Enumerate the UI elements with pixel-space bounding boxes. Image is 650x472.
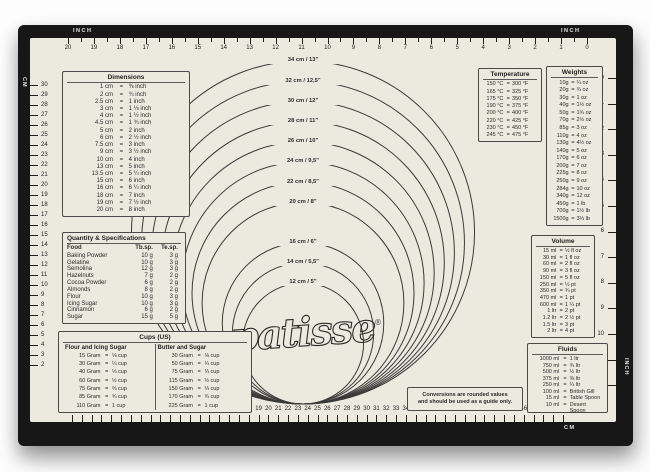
table-cell: =	[115, 207, 128, 214]
ruler-tick	[263, 38, 264, 42]
table-row: 40 Gram=⅓ cup	[65, 369, 153, 376]
table-cell: 190 °C	[483, 103, 505, 110]
table-row: 20g=¾ oz	[551, 87, 598, 94]
table-cell: 3 g	[156, 253, 181, 260]
table-cell: 30 Gram	[158, 353, 195, 360]
ruler-tick	[548, 38, 549, 42]
table-cell: 30 ml	[536, 255, 558, 262]
table-cell: 10 ml	[532, 402, 561, 415]
table-row: 9 cm=3 ½ inch	[67, 149, 185, 156]
ruler-tick	[431, 38, 432, 44]
table-cell: =	[102, 378, 110, 385]
ruler-tick	[328, 38, 329, 44]
ruler-tick	[30, 125, 38, 126]
ruler-number: 0	[579, 45, 595, 52]
ruler-number: 22	[41, 162, 48, 169]
table-cell: 1 ¼ pt	[564, 302, 590, 309]
table-cell: 7 g	[126, 273, 156, 280]
table-cell: 5 fl oz	[564, 275, 590, 282]
ruler-tick	[553, 415, 554, 422]
table-cell: 325 °F	[511, 89, 537, 96]
table-cell: 350 °F	[511, 96, 537, 103]
table-cell: ½ cup	[203, 378, 245, 385]
ruler-tick	[94, 38, 95, 44]
table-row: 175 °C=350 °F	[483, 96, 537, 103]
inch-unit-label: INCH	[623, 358, 629, 375]
table-cell: ¾ cup	[111, 394, 153, 401]
table-row: 350 ml=¾ pt	[536, 288, 590, 295]
table-cell: 450 °F	[511, 125, 537, 132]
table-row: 450g=1 lb	[551, 201, 598, 208]
table-cell: 300 °F	[511, 81, 537, 88]
ruler-tick	[376, 415, 377, 422]
ruler-tick	[30, 85, 38, 86]
ruler-tick	[146, 38, 147, 44]
ruler-number: 19	[86, 45, 102, 52]
table-cell: ½ fl oz	[564, 248, 590, 255]
table-cell: =	[115, 113, 128, 120]
ruler-number: 19	[41, 192, 48, 199]
ruler-number: 26	[41, 122, 48, 129]
table-cell: Desert Spoon	[569, 402, 603, 415]
ruler-tick	[608, 334, 616, 335]
table-cell: 1 cup	[203, 403, 245, 410]
table-row: 18 cm=7 inch	[67, 193, 185, 200]
table-row: 200g=7 oz	[551, 163, 598, 170]
ruler-number: 12	[41, 262, 48, 269]
ruler-tick	[81, 38, 82, 42]
table-row: 220 °C=425 °F	[483, 118, 537, 125]
ruler-tick	[131, 415, 132, 422]
ruler-tick	[121, 415, 122, 422]
ruler-tick	[608, 257, 616, 258]
table-cell: 7 oz	[575, 163, 598, 170]
ruler-tick	[608, 129, 616, 130]
ruler-tick	[249, 415, 250, 422]
ruler-tick	[250, 38, 251, 44]
table-cell: 1 lb	[575, 201, 598, 208]
table-cell: =	[115, 120, 128, 127]
ruler-tick	[504, 415, 505, 422]
table-cell: 170g	[551, 155, 571, 162]
ruler-tick	[276, 38, 277, 44]
ruler-tick	[30, 365, 38, 366]
table-cell: Hazelnuts	[67, 273, 126, 280]
table-cell: ¼ oz	[575, 80, 598, 87]
ruler-number: 2	[527, 45, 543, 52]
ruler-tick	[426, 415, 427, 422]
table-cell: ¾ inch	[128, 92, 185, 99]
table-cell: 40g	[551, 102, 571, 109]
ruler-tick	[185, 38, 186, 42]
temperature-table: Temperature 150 °C=300 °F165 °C=325 °F17…	[478, 68, 542, 142]
table-row: 4 cm=1 ½ inch	[67, 113, 185, 120]
table-cell: ⅛ cup	[203, 353, 245, 360]
ruler-tick	[278, 415, 279, 422]
ruler-number: 20	[41, 182, 48, 189]
fluids-table: Fluids 1000 ml=1 ltr750 ml=¾ ltr500 ml=½…	[527, 343, 608, 413]
table-cell: ¼ cup	[203, 361, 245, 368]
table-row: 340g=12 oz	[551, 193, 598, 200]
table-row: 3 cm=1 ⅛ inch	[67, 106, 185, 113]
ruler-tick	[30, 345, 38, 346]
ruler-number: 28	[41, 102, 48, 109]
table-cell: 10 g	[126, 294, 156, 301]
table-cell: Baking Powder	[67, 253, 126, 260]
table-row: 50g=1¾ oz	[551, 110, 598, 117]
table-row: 170g=6 oz	[551, 155, 598, 162]
table-cell: =	[115, 171, 128, 178]
table-cell: 3 ½ inch	[128, 149, 185, 156]
table-cell: ¾ oz	[575, 87, 598, 94]
table-cell: 6 cm	[67, 135, 115, 142]
ruler-number: 13	[41, 252, 48, 259]
table-cell: Cinnamon	[67, 307, 126, 314]
ruler-tick	[455, 415, 456, 422]
table-cell: Flour	[67, 294, 126, 301]
table-row: 250 ml=½ pt	[536, 282, 590, 289]
ruler-tick	[30, 275, 38, 276]
table-cell: 3 inch	[128, 142, 185, 149]
cm-unit-label: CM	[564, 425, 576, 431]
ruler-tick	[484, 415, 485, 422]
ruler-tick	[318, 415, 319, 422]
table-cell: =	[115, 99, 128, 106]
table-cell: 2 g	[156, 280, 181, 287]
ruler-number: 10	[41, 282, 48, 289]
table-cell: =	[102, 361, 110, 368]
table-cell: 30 Gram	[65, 361, 102, 368]
table-cell: 1 ½ inch	[128, 113, 185, 120]
table-cell: 245 °C	[483, 132, 505, 139]
group-header: Flour and Icing Sugar	[65, 344, 153, 352]
ruler-tick	[308, 415, 309, 422]
table-row: 2.5 cm=1 inch	[67, 99, 185, 106]
ruler-tick	[120, 38, 121, 44]
ruler-tick	[327, 415, 328, 422]
table-cell: 2 ½ pt	[564, 315, 590, 322]
table-cell: ⅓ cup	[203, 369, 245, 376]
ruler-tick	[30, 95, 38, 96]
ruler-tick	[224, 38, 225, 44]
table-cell: 6 ¼ inch	[128, 185, 185, 192]
table-cell: 2 inch	[128, 128, 185, 135]
table-cell: 12 oz	[575, 193, 598, 200]
table-row: 85 Gram=¾ cup	[65, 394, 153, 401]
table-cell: 115 Gram	[158, 378, 195, 385]
table-row: 284g=10 oz	[551, 186, 598, 193]
table-row: 150 °C=300 °F	[483, 81, 537, 88]
table-row: 70g=2½ oz	[551, 117, 598, 124]
ruler-tick	[535, 38, 536, 44]
ruler-tick	[608, 385, 616, 386]
table-cell: 470 ml	[536, 295, 558, 302]
table-cell: 4.5 cm	[67, 120, 115, 127]
table-cell: 170 Gram	[158, 394, 195, 401]
table-cell: Cocoa Powder	[67, 280, 126, 287]
table-cell: 70g	[551, 117, 571, 124]
note-line-2: and should be used as a guide only.	[412, 399, 518, 406]
table-cell: 3 oz	[575, 125, 598, 132]
ruler-tick	[30, 205, 38, 206]
ruler-number: 7	[397, 45, 413, 52]
ruler-tick	[522, 38, 523, 42]
table-cell: 10g	[551, 80, 571, 87]
table-cell: 4½ oz	[575, 140, 598, 147]
table-row: 15 cm=6 inch	[67, 178, 185, 185]
ruler-tick	[563, 415, 564, 422]
ruler-tick	[509, 38, 510, 44]
table-cell: =	[115, 142, 128, 149]
table-cell: ¾ cup	[203, 394, 245, 401]
ruler-number: 27	[41, 112, 48, 119]
ruler-tick	[416, 415, 417, 422]
table-cell: =	[195, 361, 203, 368]
table-cell: 40 Gram	[65, 369, 102, 376]
table-row: 2 cm=¾ inch	[67, 92, 185, 99]
table-cell: 3⅓ lb	[575, 216, 598, 223]
col-tablespoon: Tb.sp.	[126, 245, 156, 252]
ruler-number: 17	[138, 45, 154, 52]
table-cell: ½ pt	[564, 282, 590, 289]
ruler-tick	[483, 38, 484, 44]
table-cell: =	[115, 149, 128, 156]
table-row: 30g=1 oz	[551, 95, 598, 102]
ruler-tick	[392, 38, 393, 42]
ruler-tick	[170, 415, 171, 422]
table-cell: =	[195, 369, 203, 376]
ruler-number: 18	[41, 202, 48, 209]
ruler-number: 10	[320, 45, 336, 52]
table-row: Flour10 g3 g	[67, 294, 181, 301]
ruler-tick	[111, 415, 112, 422]
table-cell: 60 Gram	[65, 378, 102, 385]
table-cell: 1½ oz	[575, 102, 598, 109]
ruler-tick	[30, 325, 38, 326]
ruler-tick	[457, 38, 458, 44]
table-cell: 16 cm	[67, 185, 115, 192]
ruler-tick	[524, 415, 525, 422]
ruler-number: 4	[475, 45, 491, 52]
table-title: Temperature	[483, 71, 537, 80]
table-row: Almonds8 g2 g	[67, 287, 181, 294]
table-header-row: Food Tb.sp. Te.sp.	[67, 245, 181, 252]
table-cell: 75 Gram	[158, 369, 195, 376]
table-cell: 10 g	[126, 301, 156, 308]
ruler-tick	[172, 38, 173, 44]
table-cell: =	[115, 92, 128, 99]
ruler-tick	[337, 415, 338, 422]
ruler-tick	[209, 415, 210, 422]
table-cell: 2½ oz	[575, 117, 598, 124]
table-cell: 1 ⅛ inch	[128, 106, 185, 113]
table-cell: 3 g	[156, 294, 181, 301]
table-row: Baking Powder10 g3 g	[67, 253, 181, 260]
ruler-tick	[82, 415, 83, 422]
table-cell: =	[195, 386, 203, 393]
ruler-number: 3	[501, 45, 517, 52]
table-cell: =	[102, 386, 110, 393]
table-row: Icing Sugar10 g3 g	[67, 301, 181, 308]
table-cell: 1 inch	[128, 99, 185, 106]
table-cell: ½ cup	[111, 378, 153, 385]
table-cell: 140g	[551, 148, 571, 155]
ruler-number: 14	[41, 242, 48, 249]
table-row: 1.5 ltr=3 pt	[536, 322, 590, 329]
table-cell: 10 oz	[575, 186, 598, 193]
table-row: 250g=9 oz	[551, 178, 598, 185]
table-cell: 225 Gram	[158, 403, 195, 410]
ruler-tick	[608, 104, 616, 105]
table-cell: =	[115, 135, 128, 142]
ruler-tick	[30, 105, 38, 106]
ruler-tick	[379, 38, 380, 44]
table-cell: 130g	[551, 140, 571, 147]
table-cell: 5 oz	[575, 148, 598, 155]
table-row: 10g=¼ oz	[551, 80, 598, 87]
ruler-number: 6	[423, 45, 439, 52]
table-cell: 6 inch	[128, 178, 185, 185]
table-cell: 284g	[551, 186, 571, 193]
table-cell: 8 g	[126, 287, 156, 294]
table-row: 75 Gram=⅓ cup	[158, 369, 246, 376]
table-cell: 2 fl oz	[564, 261, 590, 268]
table-cell: 1 cup	[111, 403, 153, 410]
table-cell: 3 pt	[564, 322, 590, 329]
table-row: 30 ml=1 fl oz	[536, 255, 590, 262]
table-cell: 1¾ oz	[575, 110, 598, 117]
ruler-tick	[386, 415, 387, 422]
ruler-number: 25	[41, 132, 48, 139]
ruler-tick	[514, 415, 515, 422]
ruler-number: 21	[41, 172, 48, 179]
ruler-tick	[418, 38, 419, 42]
table-cell: 2 ltr	[536, 328, 558, 335]
ruler-tick	[30, 155, 38, 156]
table-row: 15 ml=½ fl oz	[536, 248, 590, 255]
ruler-number: 8	[41, 302, 44, 309]
conversion-note: Conversions are rounded values and shoul…	[407, 387, 523, 411]
table-cell: =	[102, 353, 110, 360]
table-cell: 4 oz	[575, 133, 598, 140]
table-cell: =	[102, 369, 110, 376]
pastry-mat: INCH INCH CM INCH CM patisse ® 34 cm / 1…	[18, 25, 633, 446]
table-cell: 5 ¼ inch	[128, 171, 185, 178]
table-cell: Sugar	[67, 314, 126, 321]
table-cell: ⅔ cup	[111, 386, 153, 393]
table-cell: =	[115, 84, 128, 91]
table-row: 75 Gram=⅔ cup	[65, 386, 153, 393]
table-row: 1 ltr=2 pt	[536, 308, 590, 315]
note-line-1: Conversions are rounded values	[412, 392, 518, 399]
table-cell: 1 ¾ inch	[128, 120, 185, 127]
table-row: 50 Gram=¼ cup	[158, 361, 246, 368]
ruler-number: 14	[216, 45, 232, 52]
dimensions-table: Dimensions 1 cm=⅜ inch2 cm=¾ inch2.5 cm=…	[62, 71, 190, 217]
table-cell: 5 inch	[128, 164, 185, 171]
table-row: 700g=1½ lb	[551, 208, 598, 215]
table-cell: 15 ml	[536, 248, 558, 255]
table-row: 200 °C=400 °F	[483, 110, 537, 117]
ruler-number: 15	[190, 45, 206, 52]
ruler-tick	[534, 415, 535, 422]
table-row: Semolina12 g3 g	[67, 266, 181, 273]
ruler-tick	[608, 232, 616, 233]
table-row: 10 ml=Desert Spoon	[532, 402, 603, 415]
ruler-number: 20	[60, 45, 76, 52]
ruler-tick	[30, 165, 38, 166]
ruler-number: 3	[41, 352, 44, 359]
table-cell: ⅓ cup	[111, 369, 153, 376]
ruler-tick	[159, 38, 160, 42]
table-row: 30 Gram=¼ cup	[65, 361, 153, 368]
ruler-number: 1	[553, 45, 569, 52]
table-row: 170 Gram=¾ cup	[158, 394, 246, 401]
ruler-tick	[30, 115, 38, 116]
table-cell: 50g	[551, 110, 571, 117]
table-cell: 450g	[551, 201, 571, 208]
table-cell: 220 °C	[483, 118, 505, 125]
table-row: 1.2 ltr=2 ½ pt	[536, 315, 590, 322]
table-cell: 20 cm	[67, 207, 115, 214]
table-cell: 230 °C	[483, 125, 505, 132]
table-cell: 75 Gram	[65, 386, 102, 393]
table-row: 6 cm=2 ½ inch	[67, 135, 185, 142]
ruler-tick	[347, 415, 348, 422]
inch-unit-label: INCH	[561, 28, 580, 34]
table-cell: 150 ml	[536, 275, 558, 282]
table-cell: 1 pt	[564, 295, 590, 302]
ruler-tick	[444, 38, 445, 42]
ruler-tick	[30, 225, 38, 226]
table-row: 16 cm=6 ¼ inch	[67, 185, 185, 192]
table-cell: 1 oz	[575, 95, 598, 102]
ruler-number: 5	[449, 45, 465, 52]
ruler-tick	[200, 415, 201, 422]
ruler-tick	[405, 38, 406, 44]
table-cell: =	[115, 164, 128, 171]
table-cell: Almonds	[67, 287, 126, 294]
ruler-tick	[30, 195, 38, 196]
ruler-number: 13	[242, 45, 258, 52]
table-row: Gelatine10 g3 g	[67, 260, 181, 267]
table-cell: 3 cm	[67, 106, 115, 113]
ruler-tick	[30, 135, 38, 136]
table-cell: 175 °C	[483, 96, 505, 103]
registered-mark: ®	[375, 318, 382, 327]
table-cell: =	[115, 185, 128, 192]
table-title: Fluids	[532, 346, 603, 355]
cm-unit-label: CM	[21, 77, 27, 88]
ruler-tick	[340, 38, 341, 42]
table-row: 225g=8 oz	[551, 170, 598, 177]
ruler-number: 9	[345, 45, 361, 52]
table-cell: 7 inch	[128, 193, 185, 200]
table-cell: 10 g	[126, 260, 156, 267]
table-cell: 85g	[551, 125, 571, 132]
table-cell: 700g	[551, 208, 571, 215]
ruler-tick	[211, 38, 212, 42]
table-row: 165 °C=325 °F	[483, 89, 537, 96]
table-row: 13.5 cm=5 ¼ inch	[67, 171, 185, 178]
ruler-tick	[133, 38, 134, 42]
ruler-number: 23	[41, 152, 48, 159]
ruler-tick	[353, 38, 354, 44]
table-cell: 6 g	[126, 280, 156, 287]
table-cell: 9 cm	[67, 149, 115, 156]
table-cell: 2 pt	[564, 308, 590, 315]
table-cell: 1.2 ltr	[536, 315, 558, 322]
